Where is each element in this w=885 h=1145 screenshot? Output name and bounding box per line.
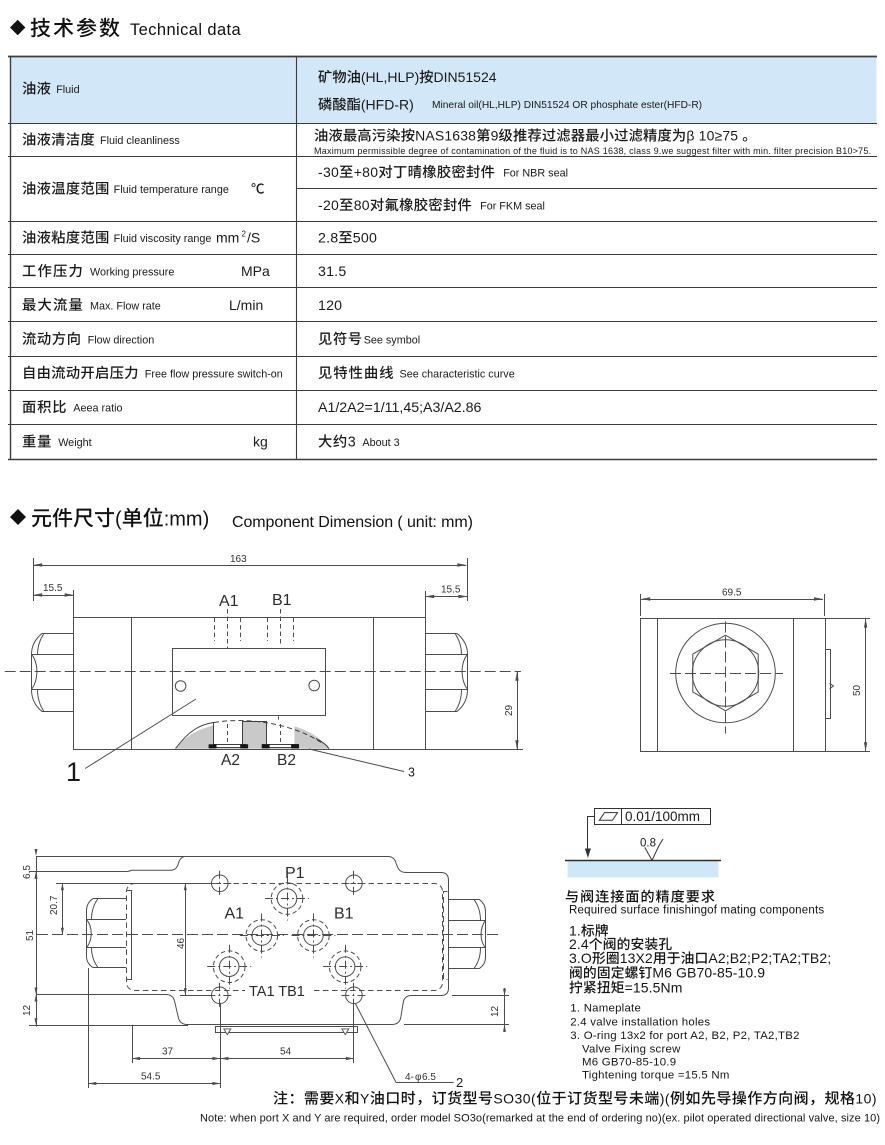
svg-text:0.8: 0.8 — [640, 838, 656, 850]
svg-text:Fluid cleanliness: Fluid cleanliness — [100, 135, 180, 147]
svg-text:+80: +80 — [354, 164, 379, 180]
svg-text:L/min: L/min — [229, 297, 263, 313]
svg-text:β 10≥75: β 10≥75 — [686, 128, 738, 144]
svg-text:9: 9 — [491, 128, 499, 144]
svg-text:NAS1638: NAS1638 — [415, 128, 476, 144]
svg-text:(HFD-R): (HFD-R) — [361, 97, 414, 113]
svg-text:Flow direction: Flow direction — [88, 334, 155, 346]
svg-text:Aeea ratio: Aeea ratio — [73, 403, 122, 415]
svg-text:54.5: 54.5 — [141, 1072, 161, 1083]
svg-text:2: 2 — [242, 230, 247, 239]
svg-text:1. Nameplate: 1. Nameplate — [570, 1003, 641, 1015]
svg-text::mm): :mm) — [164, 509, 210, 531]
svg-text:6.5: 6.5 — [22, 865, 33, 879]
svg-text:X: X — [335, 1091, 345, 1107]
svg-text:Fluid viscosity range: Fluid viscosity range — [114, 233, 212, 245]
svg-text:Maximum permissible degree of: Maximum permissible degree of contaminat… — [314, 146, 871, 156]
svg-text:Fluid: Fluid — [56, 84, 79, 96]
svg-text:51: 51 — [25, 929, 36, 941]
svg-text:=15.5Nm: =15.5Nm — [625, 979, 683, 995]
svg-text:B1: B1 — [334, 906, 354, 923]
svg-text:2.4 valve installation holes: 2.4 valve installation holes — [570, 1016, 710, 1028]
svg-text:Valve Fixing screw: Valve Fixing screw — [582, 1043, 681, 1055]
svg-text:Technical data: Technical data — [130, 21, 242, 39]
svg-text:A1/2A2=1/11,45;A3/A2.86: A1/2A2=1/11,45;A3/A2.86 — [318, 400, 482, 416]
svg-text:50: 50 — [852, 684, 863, 696]
svg-text:15.5: 15.5 — [43, 583, 63, 594]
svg-text:A2: A2 — [221, 752, 240, 769]
svg-text:Tightening torque =15.5 Nm: Tightening torque =15.5 Nm — [582, 1070, 730, 1082]
svg-text:)(: )( — [660, 1091, 670, 1107]
svg-text:2: 2 — [456, 1075, 463, 1090]
svg-text:6.5: 6.5 — [422, 1072, 436, 1083]
svg-text:29: 29 — [504, 704, 515, 716]
svg-text:15.5: 15.5 — [441, 585, 461, 596]
svg-text:12: 12 — [22, 1004, 33, 1016]
svg-text:Max. Flow rate: Max. Flow rate — [90, 300, 161, 312]
svg-text:B2: B2 — [277, 752, 296, 769]
svg-text:-20: -20 — [318, 197, 339, 213]
svg-text:See characteristic curve: See characteristic curve — [400, 368, 515, 380]
svg-text:46: 46 — [176, 937, 187, 949]
svg-text:Y: Y — [360, 1091, 370, 1107]
svg-text:MPa: MPa — [241, 263, 270, 279]
svg-text:Free flow pressure switch-on: Free flow pressure switch-on — [145, 368, 283, 380]
svg-text:/S: /S — [247, 230, 260, 246]
svg-text:Mineral oil(HL,HLP) DIN51524 O: Mineral oil(HL,HLP) DIN51524 OR phosphat… — [432, 100, 702, 111]
svg-text:Note: when port X and Y are re: Note: when port X and Y are required, or… — [200, 1113, 880, 1125]
svg-text:3: 3 — [348, 435, 357, 451]
svg-text:-30: -30 — [318, 164, 339, 180]
svg-text:54: 54 — [280, 1047, 292, 1058]
svg-text:A1: A1 — [225, 906, 245, 923]
svg-text:37: 37 — [162, 1047, 174, 1058]
svg-text:3.O: 3.O — [569, 950, 592, 966]
svg-text:SO30(: SO30( — [493, 1091, 536, 1107]
svg-text:φ: φ — [415, 1072, 422, 1083]
svg-text:31.5: 31.5 — [318, 264, 346, 280]
svg-text:163: 163 — [230, 554, 247, 565]
svg-text:Weight: Weight — [58, 437, 91, 449]
svg-text:69.5: 69.5 — [722, 588, 742, 599]
svg-text:(: ( — [115, 509, 122, 531]
svg-text:TA1 TB1: TA1 TB1 — [249, 984, 305, 1000]
svg-text:Component Dimension ( unit: mm: Component Dimension ( unit: mm) — [232, 514, 473, 531]
svg-text:500: 500 — [353, 231, 377, 247]
svg-text:A1: A1 — [219, 593, 239, 610]
svg-text:3: 3 — [408, 766, 415, 780]
svg-text:10): 10) — [855, 1091, 877, 1107]
svg-text:4-: 4- — [405, 1072, 414, 1083]
svg-text:3. O-ring 13x2 for port A2, B2: 3. O-ring 13x2 for port A2, B2, P2, TA2,… — [570, 1030, 799, 1042]
svg-text:2.8: 2.8 — [318, 231, 338, 247]
svg-text:20.7: 20.7 — [49, 895, 60, 915]
svg-text:(HL,HLP): (HL,HLP) — [361, 69, 419, 85]
svg-text:Fluid temperature range: Fluid temperature range — [114, 184, 229, 196]
svg-text:About 3: About 3 — [362, 437, 399, 449]
svg-text:12: 12 — [490, 1005, 501, 1017]
svg-text:M6 GB70-85-10.9: M6 GB70-85-10.9 — [652, 965, 765, 981]
svg-text:A2;B2;P2;TA2;TB2;: A2;B2;P2;TA2;TB2; — [708, 950, 831, 966]
svg-text:80: 80 — [354, 197, 370, 213]
svg-text:For NBR seal: For NBR seal — [503, 168, 568, 180]
svg-text:Required surface finishingof m: Required surface finishingof mating comp… — [569, 904, 824, 916]
svg-text:See symbol: See symbol — [364, 334, 420, 346]
svg-text:DIN51524: DIN51524 — [434, 69, 497, 85]
svg-text:120: 120 — [318, 298, 342, 314]
svg-text:Working pressure: Working pressure — [90, 267, 174, 279]
svg-text:kg: kg — [253, 434, 268, 450]
svg-text:B1: B1 — [272, 592, 292, 609]
svg-text:1: 1 — [66, 757, 81, 787]
svg-text:0.01/100mm: 0.01/100mm — [625, 809, 700, 824]
svg-text:For FKM seal: For FKM seal — [480, 201, 545, 213]
svg-text:mm: mm — [216, 230, 239, 246]
svg-text:P1: P1 — [285, 865, 305, 882]
svg-text:M6 GB70-85-10.9: M6 GB70-85-10.9 — [582, 1056, 676, 1068]
svg-text:13X2: 13X2 — [620, 950, 653, 966]
